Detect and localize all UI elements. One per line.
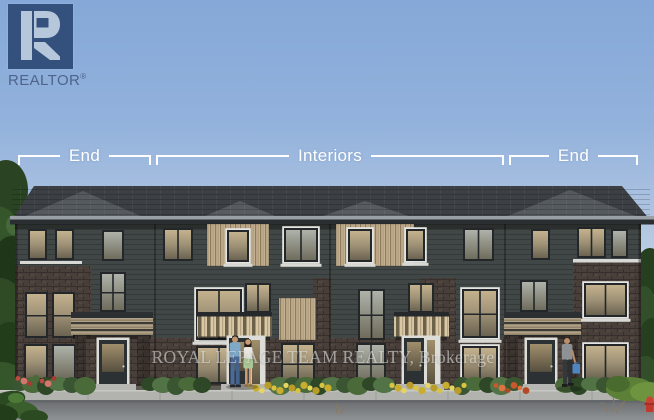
window: [224, 228, 253, 267]
section-label-end-right: End: [549, 147, 598, 164]
window: [25, 292, 48, 338]
bracket-tick: [149, 155, 151, 165]
window: [520, 280, 548, 312]
window: [577, 227, 606, 258]
window: [281, 226, 322, 267]
bracket-line: [511, 155, 549, 157]
section-bracket-end-left: End: [18, 155, 151, 165]
realtor-logo: REALTOR®: [8, 4, 78, 89]
window: [358, 289, 385, 340]
window: [100, 272, 126, 312]
bracket-line: [158, 155, 289, 157]
window: [581, 281, 631, 322]
window: [463, 228, 494, 261]
bracket-line: [109, 155, 149, 157]
roof: [10, 186, 654, 225]
window: [102, 230, 124, 261]
window: [531, 229, 550, 260]
section-label-interiors: Interiors: [289, 147, 371, 164]
window: [245, 283, 271, 313]
realtor-logo-wordmark: REALTOR®: [8, 72, 78, 89]
bracket-tick: [636, 155, 638, 165]
registered-symbol: ®: [80, 72, 86, 81]
road: [0, 403, 654, 420]
watermark-text: ROYAL LEPAGE TEAM REALTY, Brokerage: [0, 347, 650, 368]
bracket-tick: [502, 155, 504, 165]
curb: [0, 400, 654, 403]
rendering-canvas: REALTOR® End Interiors End ROYAL LEPAGE …: [0, 0, 654, 420]
section-bracket-interiors: Interiors: [156, 155, 504, 165]
section-bracket-end-right: End: [509, 155, 638, 165]
window: [459, 287, 502, 343]
bracket-line: [20, 155, 60, 157]
realtor-r-icon: [8, 4, 73, 69]
window: [163, 228, 193, 261]
bracket-line: [598, 155, 636, 157]
window: [403, 227, 429, 266]
window: [345, 227, 376, 267]
window: [28, 229, 47, 260]
window: [611, 229, 628, 258]
section-label-end-left: End: [60, 147, 109, 164]
window: [408, 283, 434, 313]
window: [55, 229, 74, 260]
bracket-line: [371, 155, 502, 157]
